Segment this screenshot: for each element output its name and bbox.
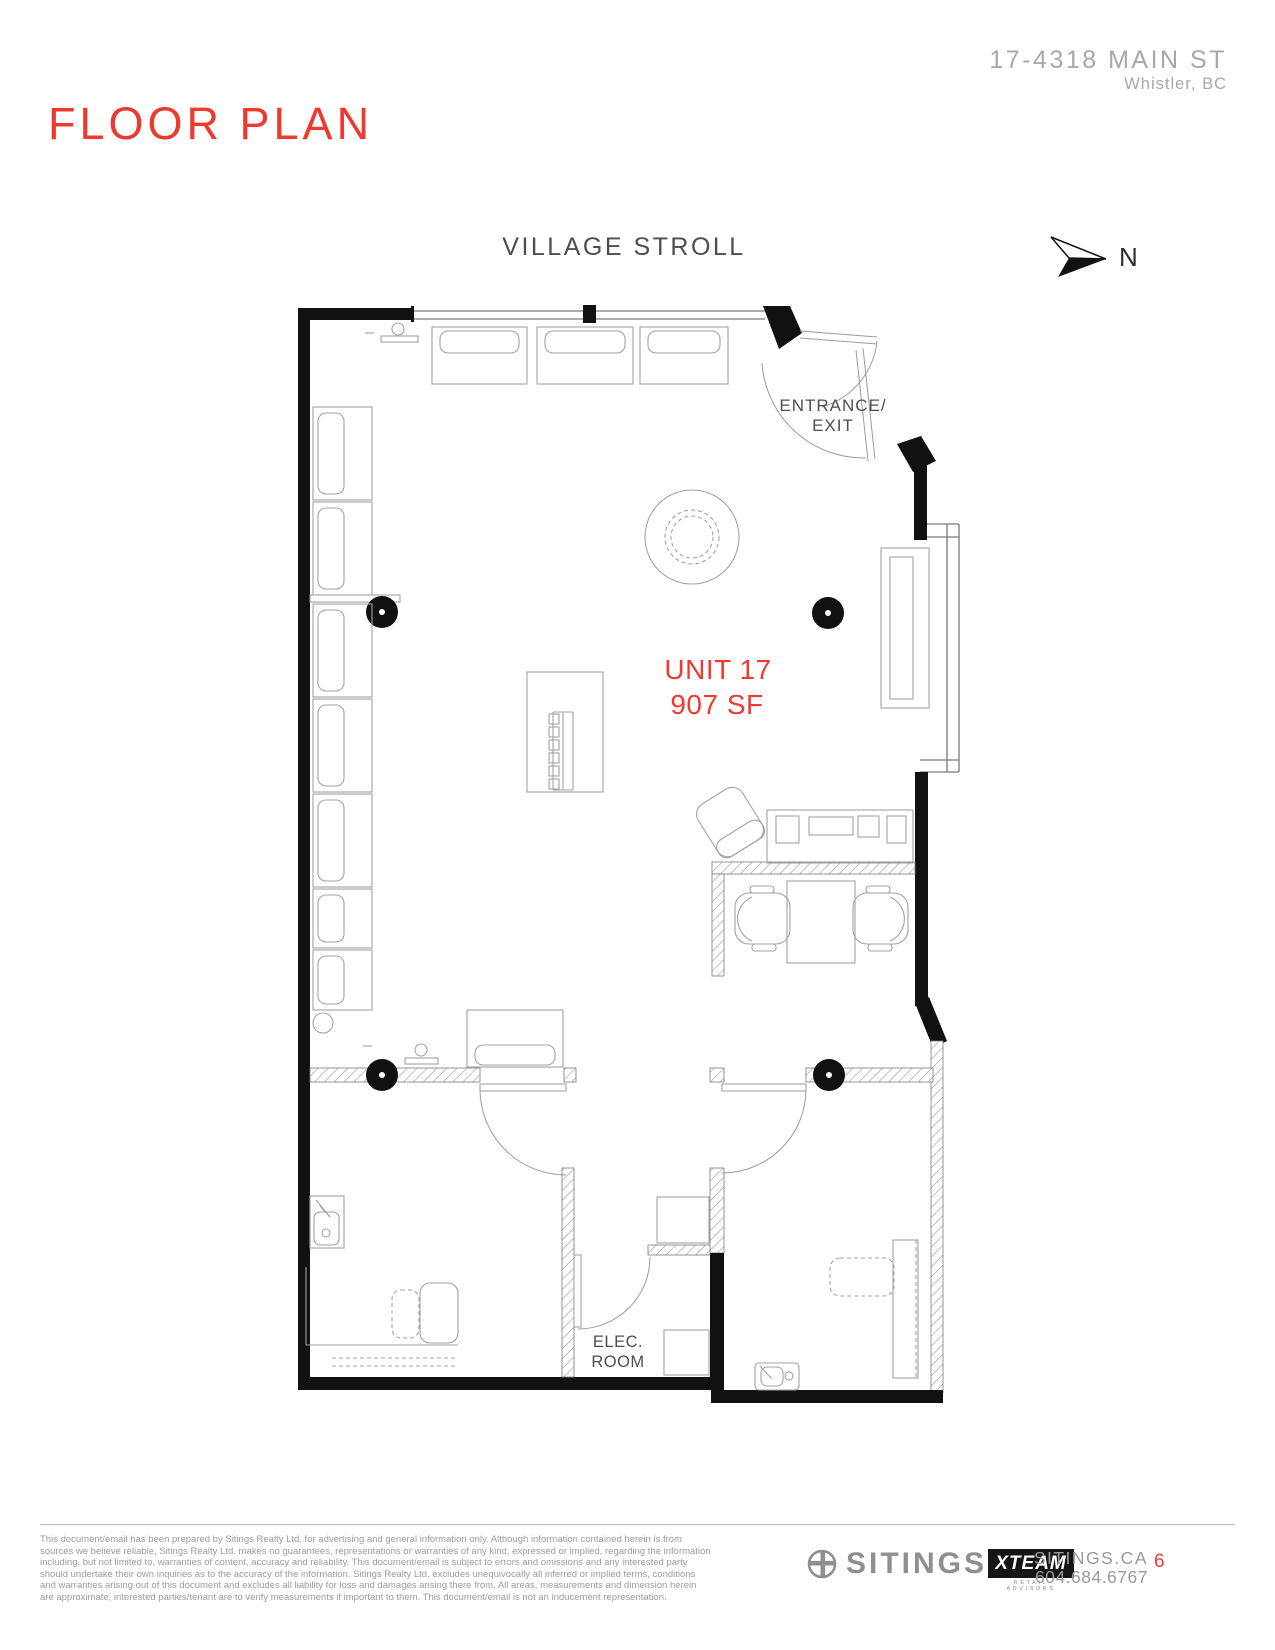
disclaimer: This document/email has been prepared by… <box>40 1534 711 1604</box>
disclaimer-line: and warranties arising out of this docum… <box>40 1580 711 1592</box>
disclaimer-line: are approximate, interested parties/tena… <box>40 1592 711 1604</box>
disclaimer-line: sources we believe reliable, Sitings Rea… <box>40 1546 711 1558</box>
footer-divider <box>40 1524 1235 1525</box>
floor-plan: N VILLAGE STROLL ENTRANCE/ EXIT UNIT 17 … <box>0 0 1275 1650</box>
street-label: VILLAGE STROLL <box>502 233 745 261</box>
elec-room-label-line1: ELEC. <box>593 1333 643 1351</box>
north-arrow-icon <box>1051 237 1106 277</box>
entrance-label-line1: ENTRANCE/ <box>779 396 886 415</box>
website: SITINGS.CA <box>1000 1549 1148 1568</box>
interior-doors <box>480 1084 806 1329</box>
disclaimer-line: should undertake their own inquiries as … <box>40 1569 711 1581</box>
unit-area-label: 907 SF <box>670 689 763 720</box>
sitings-logo-icon <box>806 1548 838 1580</box>
sitings-logo: SITINGS <box>806 1547 987 1581</box>
plan-furniture <box>306 323 929 1390</box>
disclaimer-line: This document/email has been prepared by… <box>40 1534 711 1546</box>
structural-columns <box>366 596 845 1091</box>
contact-block: SITINGS.CA 604.684.6767 <box>1000 1549 1148 1587</box>
disclaimer-line: including, but not limited to, warrantie… <box>40 1557 711 1569</box>
plan-interior-walls <box>310 595 933 1390</box>
north-label: N <box>1119 242 1138 272</box>
plan-exterior-walls <box>298 305 959 1403</box>
elec-room-label-line2: ROOM <box>591 1353 644 1371</box>
sitings-logo-text: SITINGS <box>846 1547 987 1581</box>
page-number: 6 <box>1154 1551 1165 1573</box>
entrance-label-line2: EXIT <box>812 416 854 435</box>
unit-label: UNIT 17 <box>664 654 771 685</box>
phone-number: 604.684.6767 <box>1000 1568 1148 1587</box>
